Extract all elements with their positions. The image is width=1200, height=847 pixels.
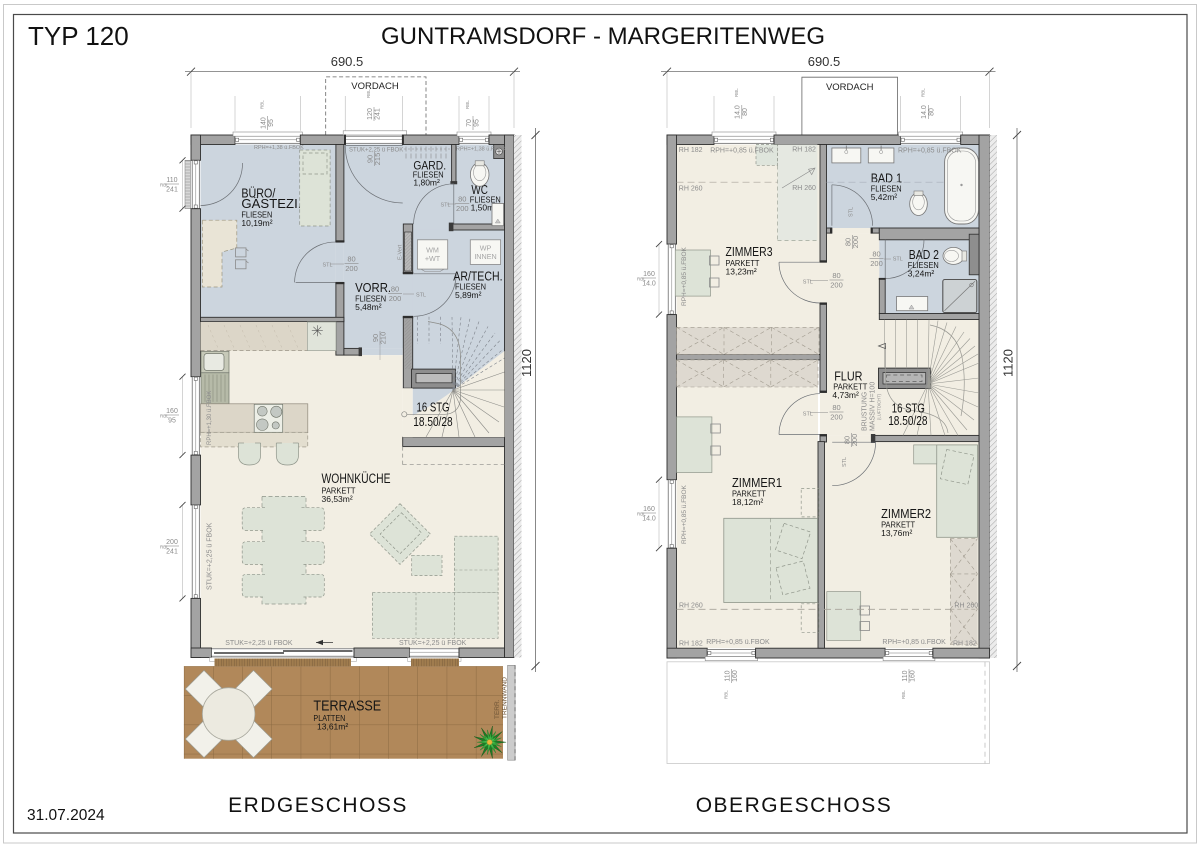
svg-text:215: 215 xyxy=(373,153,382,166)
svg-text:RPH=+1,30 ü.FBOK: RPH=+1,30 ü.FBOK xyxy=(207,391,213,445)
svg-text:120: 120 xyxy=(367,108,374,120)
svg-text:200: 200 xyxy=(830,413,843,422)
svg-text:RH 260: RH 260 xyxy=(679,603,703,610)
svg-text:RPH=+0,85 ü.FBOK: RPH=+0,85 ü.FBOK xyxy=(706,639,770,646)
svg-text:200: 200 xyxy=(851,236,860,249)
svg-text:STUK=+2,25 ü FBOK: STUK=+2,25 ü FBOK xyxy=(399,640,467,647)
svg-text:RH 260: RH 260 xyxy=(954,603,978,610)
svg-text:241: 241 xyxy=(166,187,178,194)
svg-text:RH 260: RH 260 xyxy=(792,185,816,192)
svg-text:RH 182: RH 182 xyxy=(679,641,703,648)
svg-text:95: 95 xyxy=(168,418,176,425)
svg-text:RBL: RBL xyxy=(160,183,169,188)
svg-text:16 STG: 16 STG xyxy=(417,400,450,415)
svg-text:10,19m²: 10,19m² xyxy=(241,218,272,228)
svg-text:80: 80 xyxy=(458,194,466,203)
svg-text:200: 200 xyxy=(830,281,843,290)
svg-text:E-Vert: E-Vert xyxy=(398,244,404,260)
svg-text:RBL: RBL xyxy=(366,89,371,98)
svg-text:STUK=+2,25 ü FBOK: STUK=+2,25 ü FBOK xyxy=(225,640,293,647)
svg-text:13,23m²: 13,23m² xyxy=(726,267,757,277)
svg-text:80: 80 xyxy=(391,284,399,293)
svg-text:5,42m²: 5,42m² xyxy=(871,192,898,202)
svg-text:18.50/28: 18.50/28 xyxy=(413,414,452,429)
svg-text:STL: STL xyxy=(893,257,903,263)
svg-text:VORDACH: VORDACH xyxy=(826,82,874,93)
svg-text:RH 182: RH 182 xyxy=(792,147,816,154)
svg-text:VORDACH: VORDACH xyxy=(351,81,399,92)
svg-text:36,53m²: 36,53m² xyxy=(322,494,353,504)
svg-text:RH 260: RH 260 xyxy=(679,186,703,193)
svg-text:STL: STL xyxy=(323,263,333,269)
svg-text:13,61m²: 13,61m² xyxy=(317,722,348,732)
svg-text:RPH=+0,85 ü.FBOK: RPH=+0,85 ü.FBOK xyxy=(710,148,774,155)
svg-text:RBL: RBL xyxy=(260,100,265,109)
svg-text:RPH=+1,38 ü.FBOK: RPH=+1,38 ü.FBOK xyxy=(456,147,506,153)
svg-text:80: 80 xyxy=(832,403,840,412)
svg-text:70: 70 xyxy=(466,119,473,127)
svg-text:200: 200 xyxy=(345,264,358,273)
svg-text:1,80m²: 1,80m² xyxy=(413,178,440,188)
svg-text:5,89m²: 5,89m² xyxy=(455,290,482,300)
svg-text:14.0: 14.0 xyxy=(642,516,656,523)
svg-text:241: 241 xyxy=(374,108,381,120)
svg-text:STL: STL xyxy=(849,207,855,217)
svg-text:RPH=+0,85 ü.FBOK: RPH=+0,85 ü.FBOK xyxy=(882,639,946,646)
svg-text:ZIMMER3: ZIMMER3 xyxy=(726,244,773,259)
svg-text:95: 95 xyxy=(268,119,275,127)
svg-text:STL: STL xyxy=(441,203,451,209)
svg-text:80: 80 xyxy=(347,254,355,263)
svg-text:110: 110 xyxy=(902,670,909,681)
svg-text:200: 200 xyxy=(870,259,883,268)
svg-text:690.5: 690.5 xyxy=(808,54,841,69)
svg-text:RPH=+0,85 ü.FBOK: RPH=+0,85 ü.FBOK xyxy=(898,148,962,155)
svg-text:200: 200 xyxy=(850,434,859,447)
svg-text:4,73m²: 4,73m² xyxy=(832,390,859,400)
svg-text:3,24m²: 3,24m² xyxy=(908,269,935,279)
svg-text:RBL: RBL xyxy=(920,88,925,97)
svg-text:RH 182: RH 182 xyxy=(679,147,703,154)
svg-text:200: 200 xyxy=(456,204,469,213)
svg-text:210: 210 xyxy=(378,332,387,345)
svg-text:STL: STL xyxy=(416,293,426,299)
svg-text:RBL: RBL xyxy=(724,690,729,699)
svg-text:TERRASSE: TERRASSE xyxy=(313,698,381,715)
svg-text:110: 110 xyxy=(724,670,731,681)
svg-text:13,76m²: 13,76m² xyxy=(881,528,912,538)
svg-text:TRENNWAND: TRENNWAND xyxy=(502,677,509,719)
svg-text:14.0: 14.0 xyxy=(735,105,742,119)
svg-text:STL: STL xyxy=(842,457,848,467)
svg-text:1120: 1120 xyxy=(1001,349,1016,377)
svg-text:STUK=+2,25 ü FBOK: STUK=+2,25 ü FBOK xyxy=(207,522,214,590)
svg-text:95: 95 xyxy=(473,119,480,127)
svg-text:18,12m²: 18,12m² xyxy=(732,497,763,507)
svg-text:RBL: RBL xyxy=(734,88,739,97)
svg-text:14.0: 14.0 xyxy=(642,281,656,288)
svg-text:690.5: 690.5 xyxy=(331,54,364,69)
svg-text:RPH=+0,85 ü.FBOK: RPH=+0,85 ü.FBOK xyxy=(681,246,688,306)
svg-text:18.50/28: 18.50/28 xyxy=(888,413,927,428)
svg-text:241: 241 xyxy=(166,549,178,556)
svg-text:GUNTRAMSDORF - MARGERITENWEG: GUNTRAMSDORF - MARGERITENWEG xyxy=(381,23,825,50)
svg-text:RBL: RBL xyxy=(160,414,169,419)
svg-text:160: 160 xyxy=(909,670,916,682)
svg-text:STUK+2,25 ü FBOK: STUK+2,25 ü FBOK xyxy=(349,148,403,154)
svg-text:RH 182: RH 182 xyxy=(953,641,977,648)
svg-text:80: 80 xyxy=(832,271,840,280)
svg-text:(LUFTDICHT): (LUFTDICHT) xyxy=(876,393,881,420)
svg-text:BRUSTUNG: BRUSTUNG xyxy=(862,392,869,431)
svg-text:14.0: 14.0 xyxy=(921,105,928,119)
svg-text:5,48m²: 5,48m² xyxy=(355,302,382,312)
svg-text:80: 80 xyxy=(929,108,936,116)
svg-text:RBL: RBL xyxy=(465,100,470,109)
svg-text:OBERGESCHOSS: OBERGESCHOSS xyxy=(696,794,893,817)
svg-text:RBL: RBL xyxy=(901,690,906,699)
svg-text:WOHNKÜCHE: WOHNKÜCHE xyxy=(322,471,391,486)
svg-text:140: 140 xyxy=(260,117,267,129)
svg-text:TYP 120: TYP 120 xyxy=(28,21,129,51)
svg-text:80: 80 xyxy=(742,108,749,116)
svg-text:31.07.2024: 31.07.2024 xyxy=(27,807,105,824)
svg-text:RBL: RBL xyxy=(160,545,169,550)
svg-text:TERR.: TERR. xyxy=(494,699,501,719)
svg-text:RBL: RBL xyxy=(637,277,646,282)
svg-text:INNEN: INNEN xyxy=(474,252,496,261)
svg-text:200: 200 xyxy=(389,294,402,303)
svg-text:RPH=+0,85 ü.FBOK: RPH=+0,85 ü.FBOK xyxy=(681,484,688,544)
svg-text:RBL: RBL xyxy=(637,512,646,517)
svg-text:ERDGESCHOSS: ERDGESCHOSS xyxy=(228,794,408,817)
svg-text:RPH=+1,38 ü.FBOK: RPH=+1,38 ü.FBOK xyxy=(254,145,304,151)
svg-text:+WT: +WT xyxy=(425,254,441,263)
svg-text:160: 160 xyxy=(732,670,739,682)
svg-text:80: 80 xyxy=(872,249,880,258)
